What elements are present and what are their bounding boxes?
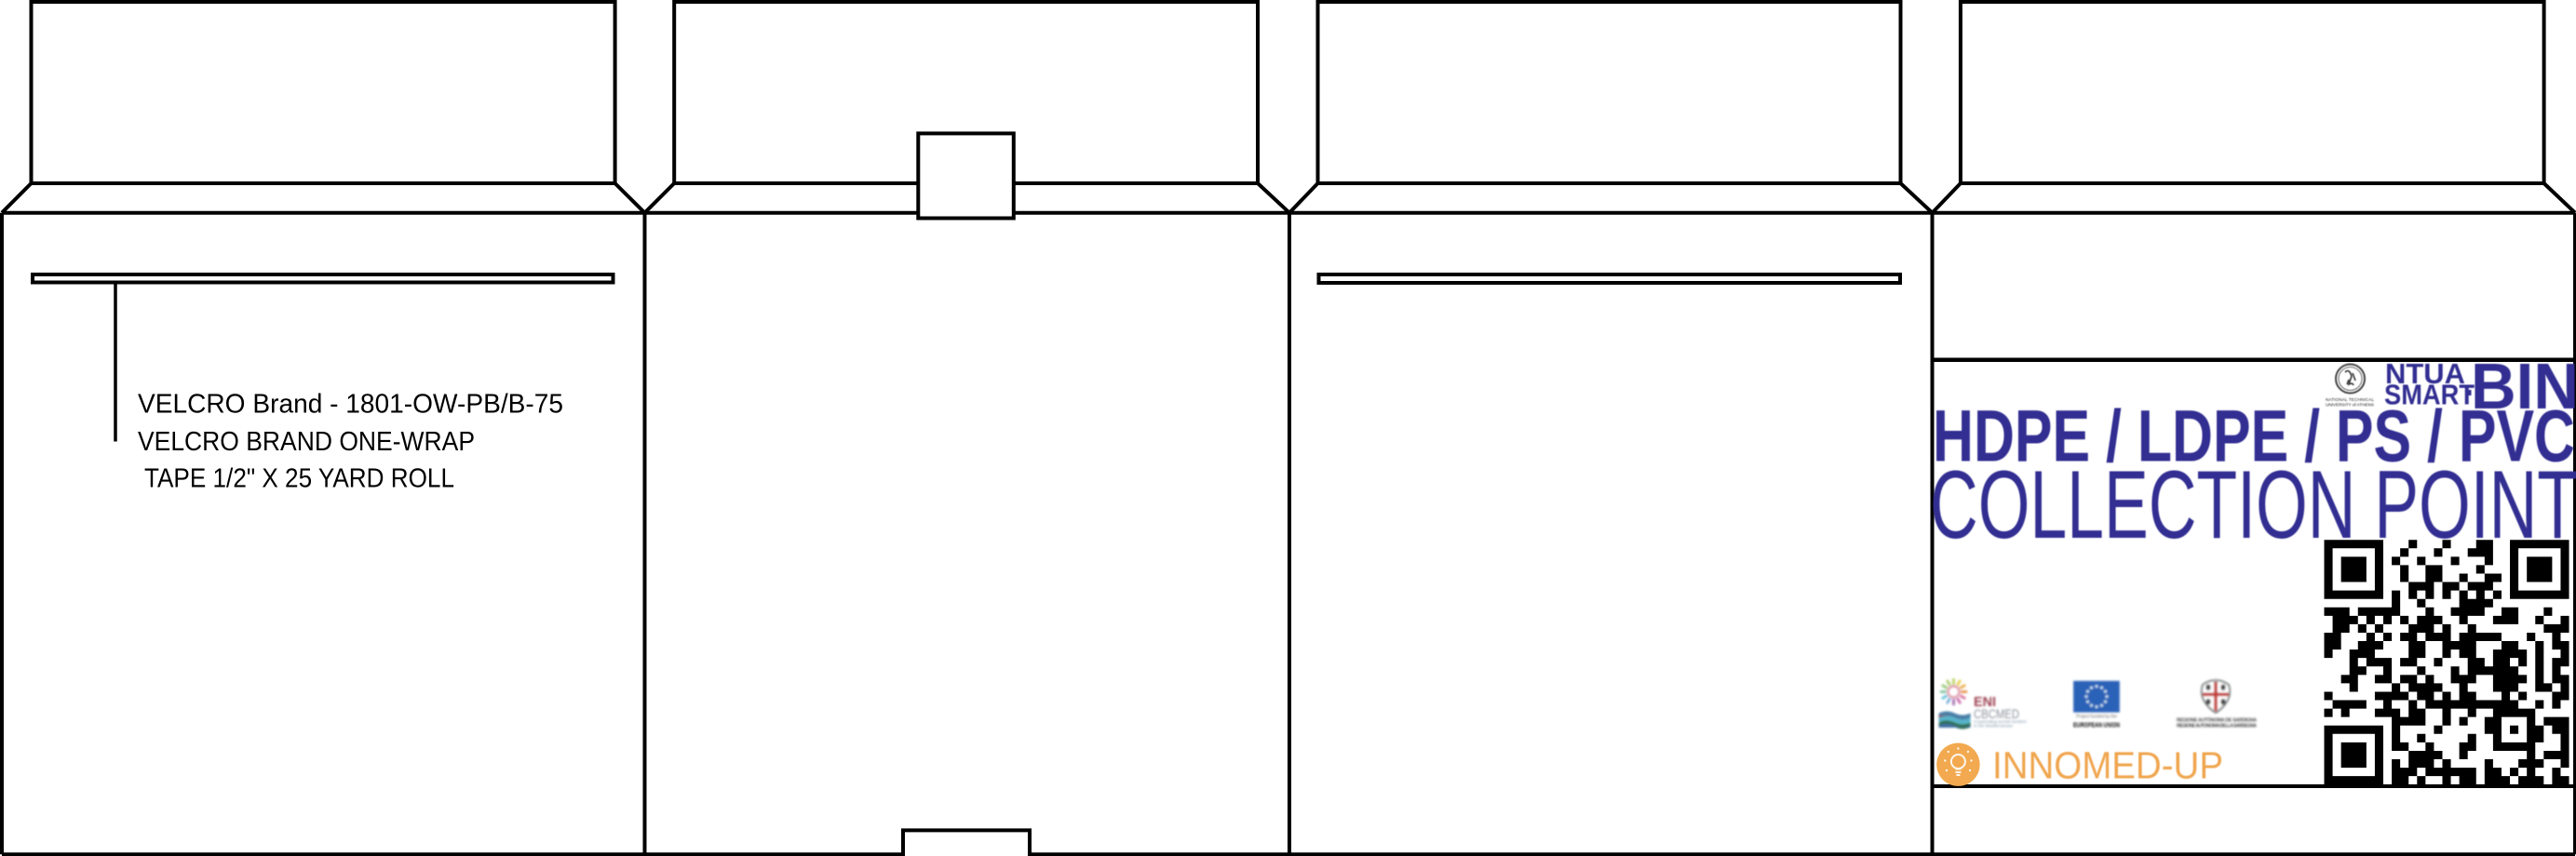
svg-text:VELCRO BRAND ONE-WRAP: VELCRO BRAND ONE-WRAP	[138, 427, 475, 457]
svg-text:TAPE 1/2" X 25 YARD ROLL: TAPE 1/2" X 25 YARD ROLL	[144, 464, 454, 494]
svg-text:INNOMED-UP: INNOMED-UP	[1992, 744, 2223, 787]
svg-text:in the Mediterranean: in the Mediterranean	[1974, 724, 2014, 729]
svg-text:REGIONE AUTONOMA DELLA SARDEGN: REGIONE AUTONOMA DELLA SARDEGNA	[2177, 724, 2257, 729]
svg-text:NATIONAL TECHNICAL: NATIONAL TECHNICAL	[2326, 397, 2374, 402]
svg-text:VELCRO Brand - 1801-OW-PB/B-75: VELCRO Brand - 1801-OW-PB/B-75	[138, 390, 563, 420]
svg-text:REGIONE AUTÒNOMA DE SARDIGNA: REGIONE AUTÒNOMA DE SARDIGNA	[2177, 716, 2257, 724]
svg-text:UNIVERSITY of ATHENS: UNIVERSITY of ATHENS	[2326, 403, 2374, 408]
svg-text:EUROPEAN UNION: EUROPEAN UNION	[2073, 723, 2120, 729]
svg-text:Project funded by the: Project funded by the	[2076, 715, 2117, 720]
